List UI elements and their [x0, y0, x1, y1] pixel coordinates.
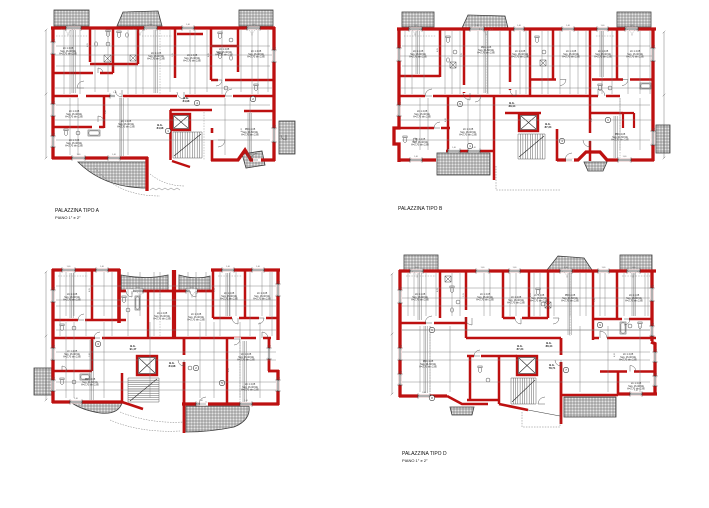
svg-text:PALAZZINA TIPO A: PALAZZINA TIPO A [55, 208, 100, 214]
svg-text:1,20: 1,20 [51, 378, 55, 380]
svg-text:3,15: 3,15 [172, 53, 174, 57]
svg-text:1,40: 1,40 [74, 398, 78, 400]
svg-text:1,40: 1,40 [564, 267, 568, 269]
svg-text:4,05: 4,05 [87, 43, 89, 47]
svg-text:4,20: 4,20 [228, 368, 230, 372]
svg-text:1,20: 1,20 [651, 46, 655, 48]
svg-text:PIANO 1° e 2°: PIANO 1° e 2° [55, 215, 81, 220]
svg-text:4,05: 4,05 [208, 53, 210, 57]
svg-text:1,20: 1,20 [397, 103, 401, 105]
svg-text:1,40: 1,40 [190, 287, 194, 289]
svg-text:1,40: 1,40 [226, 266, 230, 268]
svg-text:1,40: 1,40 [186, 24, 190, 26]
svg-text:1,20: 1,20 [650, 286, 654, 288]
svg-text:1,40: 1,40 [252, 24, 256, 26]
svg-text:1,20: 1,20 [397, 46, 401, 48]
svg-text:2,90: 2,90 [594, 298, 596, 302]
svg-text:4,05: 4,05 [89, 288, 91, 292]
svg-text:1,20: 1,20 [272, 48, 276, 50]
svg-text:1,20: 1,20 [650, 324, 654, 326]
svg-text:2,90: 2,90 [89, 353, 91, 357]
svg-text:1,40: 1,40 [112, 154, 116, 156]
svg-text:1,40: 1,40 [149, 24, 153, 26]
svg-text:PALAZZINA TIPO D: PALAZZINA TIPO D [402, 451, 447, 457]
svg-text:1,20: 1,20 [51, 346, 55, 348]
svg-text:1,40: 1,40 [632, 267, 636, 269]
svg-text:4,05: 4,05 [437, 288, 439, 292]
svg-text:1,40: 1,40 [517, 25, 521, 27]
svg-text:1,20: 1,20 [276, 378, 280, 380]
svg-text:PIANO 1° e 2°: PIANO 1° e 2° [402, 458, 428, 463]
svg-text:1,40: 1,40 [414, 25, 418, 27]
svg-text:2,90: 2,90 [105, 110, 107, 114]
svg-text:1,20: 1,20 [51, 288, 55, 290]
svg-text:1,40: 1,40 [414, 156, 418, 158]
svg-text:PALAZZINA TIPO B: PALAZZINA TIPO B [398, 206, 443, 212]
svg-text:4,20: 4,20 [614, 353, 616, 357]
svg-text:1,20: 1,20 [653, 374, 657, 376]
svg-text:1,40: 1,40 [481, 267, 485, 269]
svg-text:4,20: 4,20 [445, 118, 447, 122]
svg-text:1,20: 1,20 [272, 126, 276, 128]
svg-text:1,40: 1,40 [452, 147, 456, 149]
svg-text:1,40: 1,40 [623, 156, 627, 158]
svg-text:1,40: 1,40 [256, 266, 260, 268]
svg-text:1,20: 1,20 [276, 282, 280, 284]
svg-text:1,40: 1,40 [472, 147, 476, 149]
svg-text:1,40: 1,40 [67, 266, 71, 268]
svg-text:1,20: 1,20 [267, 346, 271, 348]
svg-text:3,15: 3,15 [214, 288, 216, 292]
svg-text:1,40: 1,40 [72, 24, 76, 26]
svg-text:1,20: 1,20 [398, 288, 402, 290]
svg-text:4,05: 4,05 [530, 293, 532, 297]
svg-text:1,20: 1,20 [398, 372, 402, 374]
svg-text:1,40: 1,40 [475, 25, 479, 27]
svg-text:1,20: 1,20 [51, 134, 55, 136]
svg-text:1,40: 1,40 [602, 267, 606, 269]
svg-text:1,40: 1,40 [100, 266, 104, 268]
svg-text:1,20: 1,20 [51, 40, 55, 42]
svg-text:1,20: 1,20 [653, 350, 657, 352]
svg-text:4,20: 4,20 [241, 128, 243, 132]
svg-text:2,90: 2,90 [591, 118, 593, 122]
svg-text:4,05: 4,05 [527, 53, 529, 57]
svg-text:1,40: 1,40 [513, 267, 517, 269]
svg-text:3,15: 3,15 [461, 53, 463, 57]
svg-text:1,40: 1,40 [136, 287, 140, 289]
svg-text:1,40: 1,40 [601, 25, 605, 27]
svg-text:1,20: 1,20 [651, 129, 655, 131]
svg-text:1,40: 1,40 [415, 267, 419, 269]
svg-text:4,05: 4,05 [437, 48, 439, 52]
svg-text:1,40: 1,40 [566, 25, 570, 27]
svg-text:1,40: 1,40 [77, 154, 81, 156]
svg-text:1,20: 1,20 [398, 346, 402, 348]
svg-text:3,15: 3,15 [463, 293, 465, 297]
svg-text:1,20: 1,20 [51, 102, 55, 104]
svg-text:1,40: 1,40 [630, 25, 634, 27]
